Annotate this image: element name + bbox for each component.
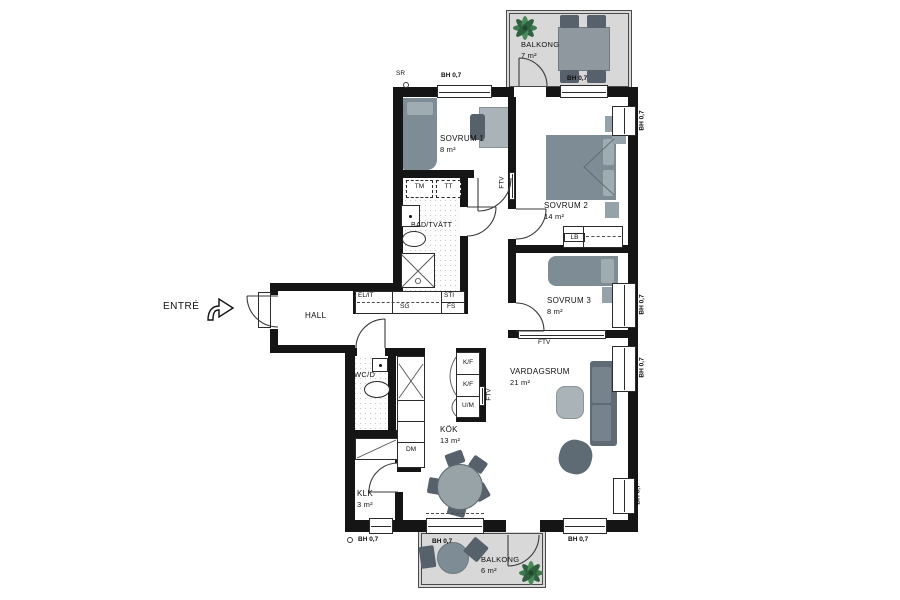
room-name: BALKONG [481, 555, 519, 564]
label-um: U/M [456, 402, 480, 409]
entrance-text: ENTRÉ [163, 301, 199, 312]
room-label-vardagsrum: VARDAGSRUM 21 m² [510, 366, 570, 389]
dm-text: DM [406, 446, 416, 453]
room-label-hall: HALL [305, 310, 326, 321]
interior-window [509, 172, 515, 200]
label-kf-2: K/F [456, 381, 480, 388]
pillow [601, 259, 614, 283]
tt-text: TT [445, 183, 453, 190]
wall [385, 348, 425, 356]
balcony-chair [587, 70, 606, 83]
label-tt: TT [436, 183, 461, 190]
wc-door [356, 319, 385, 348]
balcony-chair [419, 545, 437, 569]
entrance-label: ENTRÉ [163, 301, 199, 312]
corner-marker [348, 538, 353, 543]
label-sti: STI [444, 292, 454, 299]
room-area: 8 m² [547, 307, 563, 316]
bh-text: BH 0,7 [639, 357, 646, 377]
bh-text: BH 0,7 [567, 75, 587, 82]
sr-text: SR [396, 70, 405, 77]
window-height-label: BH 0,7 [635, 479, 642, 511]
room-area: 13 m² [440, 436, 460, 445]
window [612, 106, 636, 136]
interior-window [518, 330, 606, 339]
window-height-label: BH 0,7 [639, 105, 646, 137]
wall [270, 283, 403, 291]
room-area: 8 m² [440, 145, 456, 154]
lb-text: LB [571, 234, 579, 241]
room-area: 3 m² [357, 500, 373, 509]
counter-divider [398, 400, 424, 401]
window [369, 518, 393, 534]
room-label-klk: KLK 3 m² [357, 488, 373, 511]
ftv-text: FTV [486, 388, 493, 400]
toilet [402, 231, 426, 247]
closet-rail [357, 302, 439, 303]
window-height-label: BH 0,7 [432, 538, 452, 545]
label-fs: FS [447, 303, 455, 310]
room-label-sovrum3: SOVRUM 3 8 m² [547, 295, 591, 318]
room-name: BAD/TVÄTT [411, 222, 452, 229]
window-height-label: BH 0,7 [568, 536, 588, 543]
sink-dot [409, 215, 412, 218]
room-label-wcd: WC/D [354, 370, 375, 381]
wall [345, 430, 400, 438]
sti-text: STI [444, 292, 454, 299]
low-sill-line [426, 513, 484, 514]
bh-text: BH 0,7 [639, 110, 646, 130]
room-name: KÖK [440, 425, 458, 434]
door-opening [506, 520, 540, 532]
coffee-table [556, 386, 584, 419]
window [612, 283, 636, 328]
room-name: SOVRUM 1 [440, 134, 484, 143]
balcony-table [558, 27, 610, 71]
bh-text: BH 0,7 [432, 538, 452, 545]
label-ftv-corridor: FTV [499, 168, 506, 198]
elit-text: EL/IT [358, 292, 374, 299]
bh-text: BH 0,7 [568, 536, 588, 543]
label-dm: DM [397, 446, 425, 453]
bh-text: BH 0,7 [635, 484, 642, 504]
entrance-arrow-icon [208, 299, 233, 320]
balcony-chair [587, 15, 606, 28]
room-name: VARDAGSRUM [510, 367, 570, 376]
bh-text: BH 0,7 [358, 536, 378, 543]
window-height-label: BH 0,7 [639, 289, 646, 321]
label-ftv-kitchen: FTV [486, 380, 493, 410]
ftv-text: FTV [538, 339, 550, 346]
wall [508, 87, 516, 178]
floor-plan: SOVRUM 1 8 m² SOVRUM 2 14 m² SOVRUM 3 8 … [0, 0, 900, 600]
sofa-cushion [592, 367, 611, 403]
wall [270, 345, 355, 353]
balcony-chair [560, 15, 579, 28]
wall [270, 329, 278, 353]
bh-text: BH 0,7 [639, 294, 646, 314]
tm-text: TM [415, 183, 424, 190]
kf-text: K/F [463, 359, 473, 366]
wall [345, 348, 357, 356]
window [612, 346, 636, 392]
label-tm: TM [406, 183, 433, 190]
wall [460, 170, 468, 207]
room-label-balkong-top: BALKONG 7 m² [521, 40, 559, 61]
label-sg: SG [400, 303, 409, 310]
room-name: SOVRUM 3 [547, 296, 591, 305]
window [613, 478, 635, 514]
toilet [364, 381, 390, 398]
wall [508, 253, 516, 303]
window [563, 518, 607, 534]
label-kf-1: K/F [456, 359, 480, 366]
room-name: HALL [305, 311, 326, 320]
counter-divider [398, 442, 424, 443]
label-elit: EL/IT [358, 292, 374, 299]
room-area: 7 m² [521, 51, 537, 60]
room-name: BALKONG [521, 40, 559, 49]
label-lb: LB [564, 233, 585, 242]
closet-rail [586, 236, 621, 237]
room-label-bad: BAD/TVÄTT [411, 221, 452, 231]
fs-text: FS [447, 303, 455, 310]
window-height-label: BH 0,7 [441, 72, 461, 79]
bathroom-door [467, 207, 496, 236]
label-sr: SR [396, 70, 405, 77]
cabinet-divider [457, 396, 479, 397]
um-text: U/M [462, 402, 474, 409]
window [437, 85, 492, 98]
window-height-label: BH 0,7 [639, 352, 646, 384]
room-area: 6 m² [481, 566, 497, 575]
pillow [603, 170, 614, 196]
balcony-round-table [437, 542, 469, 574]
room-area: 14 m² [544, 212, 564, 221]
sink-dot [379, 364, 382, 367]
room-name: SOVRUM 2 [544, 201, 588, 210]
room-label-balkong-bottom: BALKONG 6 m² [481, 555, 519, 576]
dining-table [437, 464, 483, 510]
room-name: KLK [357, 489, 373, 498]
cabinet-divider [457, 374, 479, 375]
window-height-label: BH 0,7 [567, 75, 587, 82]
sofa-cushion [592, 405, 611, 441]
sg-text: SG [400, 303, 409, 310]
room-area: 21 m² [510, 378, 530, 387]
room-label-sovrum1: SOVRUM 1 8 m² [440, 133, 484, 156]
shaft [355, 438, 398, 460]
pillow [407, 102, 433, 115]
wall [388, 356, 396, 432]
room-label-sovrum2: SOVRUM 2 14 m² [544, 200, 588, 223]
bedroom1-door [478, 178, 511, 211]
window-height-label: BH 0,7 [358, 536, 378, 543]
klk-door [369, 463, 398, 492]
door-opening [514, 87, 546, 97]
ftv-text: FTV [499, 176, 506, 188]
bedroom2-door [516, 209, 546, 239]
wall [395, 492, 403, 522]
counter-divider [398, 421, 424, 422]
window [560, 85, 608, 98]
bedroom3-door [516, 303, 544, 331]
label-ftv-bedroom3: FTV [538, 339, 550, 346]
wall [460, 236, 468, 291]
nightstand [605, 202, 619, 218]
room-name: WC/D [354, 370, 375, 379]
room-label-kok: KÖK 13 m² [440, 424, 460, 447]
window [426, 518, 484, 534]
shower [401, 253, 435, 288]
entry-threshold [258, 292, 271, 328]
bh-text: BH 0,7 [441, 72, 461, 79]
kf-text: K/F [463, 381, 473, 388]
